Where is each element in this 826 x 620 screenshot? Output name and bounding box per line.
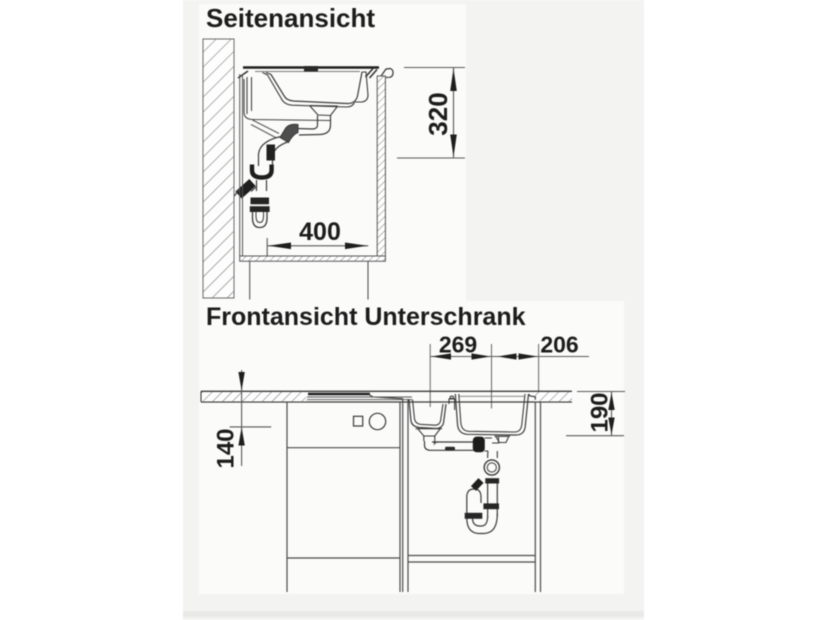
svg-text:Seitenansicht: Seitenansicht	[206, 3, 375, 33]
svg-text:190: 190	[587, 392, 614, 432]
svg-text:320: 320	[423, 92, 453, 135]
svg-text:269: 269	[439, 332, 477, 358]
svg-text:400: 400	[299, 218, 341, 246]
svg-text:Frontansicht Unterschrank: Frontansicht Unterschrank	[206, 303, 526, 331]
svg-text:206: 206	[540, 332, 578, 358]
svg-text:140: 140	[213, 428, 240, 468]
